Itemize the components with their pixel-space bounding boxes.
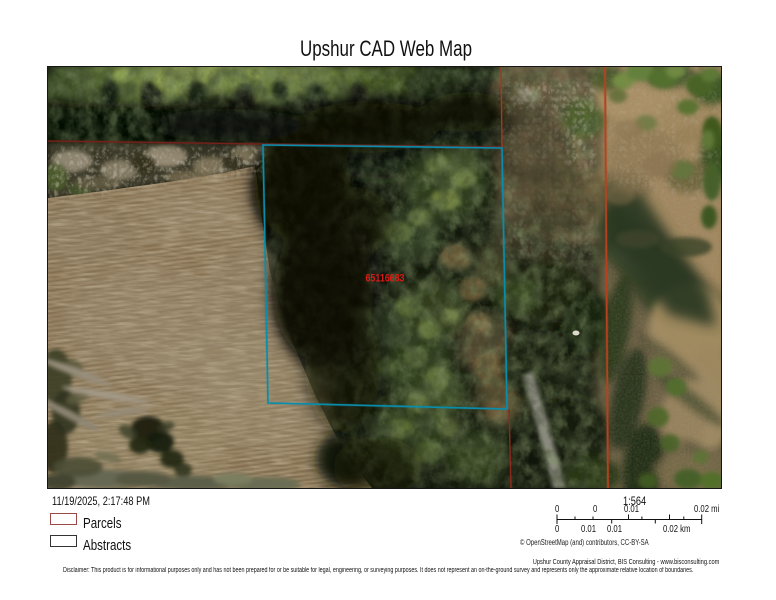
svg-text:65116683: 65116683: [366, 273, 405, 285]
